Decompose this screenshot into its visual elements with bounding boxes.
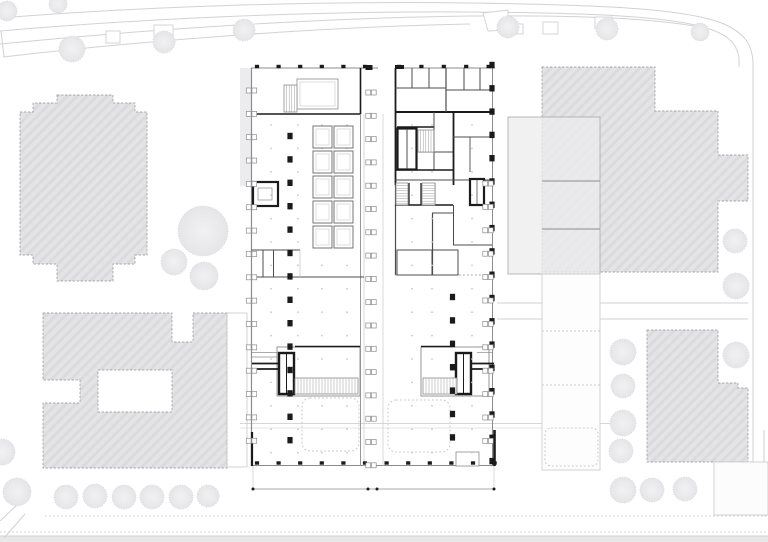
grid-marker bbox=[483, 392, 488, 397]
grid-marker bbox=[488, 228, 493, 233]
grid-marker bbox=[371, 207, 376, 212]
grid-marker bbox=[366, 346, 371, 351]
grid-dot bbox=[297, 428, 299, 430]
grid-dot bbox=[431, 428, 433, 430]
column-mark bbox=[287, 437, 292, 443]
grid-dot bbox=[471, 194, 473, 196]
survey-dot bbox=[493, 488, 496, 491]
grid-marker bbox=[371, 183, 376, 188]
grid-dot bbox=[411, 428, 413, 430]
tree bbox=[673, 477, 697, 501]
grid-dot bbox=[471, 241, 473, 243]
grid-marker bbox=[366, 90, 371, 95]
grid-dot bbox=[411, 358, 413, 360]
grid-marker bbox=[483, 368, 488, 373]
tree bbox=[83, 484, 107, 508]
grid-marker bbox=[246, 322, 251, 327]
grid-marker bbox=[246, 158, 251, 163]
grid-marker bbox=[252, 298, 257, 303]
grid-dot bbox=[270, 288, 272, 290]
facade-tick bbox=[320, 461, 324, 464]
grid-dot bbox=[270, 194, 272, 196]
facade-tick bbox=[341, 461, 345, 464]
grid-marker bbox=[246, 205, 251, 210]
grid-dot bbox=[346, 428, 348, 430]
grid-marker bbox=[483, 415, 488, 420]
tree bbox=[723, 342, 749, 368]
grid-marker bbox=[366, 323, 371, 328]
facade-tick bbox=[464, 65, 468, 68]
grid-dot bbox=[346, 265, 348, 267]
column-mark bbox=[287, 273, 292, 279]
grid-dot bbox=[431, 171, 433, 173]
grid-marker bbox=[246, 181, 251, 186]
column-mark bbox=[287, 203, 292, 209]
grid-marker bbox=[483, 251, 488, 256]
grid-marker bbox=[366, 230, 371, 235]
grid-marker bbox=[246, 345, 251, 350]
grid-dot bbox=[471, 265, 473, 267]
grid-dot bbox=[270, 265, 272, 267]
grid-marker bbox=[252, 415, 257, 420]
grid-marker bbox=[483, 438, 488, 443]
grid-marker bbox=[246, 438, 251, 443]
grid-marker bbox=[366, 253, 371, 258]
grid-dot bbox=[431, 335, 433, 337]
site-plan-page bbox=[0, 0, 768, 542]
grid-dot bbox=[297, 335, 299, 337]
grid-marker bbox=[488, 204, 493, 209]
survey-dot bbox=[367, 488, 370, 491]
grid-marker bbox=[483, 321, 488, 326]
grid-dot bbox=[270, 405, 272, 407]
grid-dot bbox=[270, 335, 272, 337]
tree bbox=[610, 477, 636, 503]
column-mark bbox=[489, 155, 494, 161]
grid-dot bbox=[321, 452, 323, 454]
grid-dot bbox=[297, 171, 299, 173]
facade-ticks-layer bbox=[255, 65, 497, 465]
grid-marker bbox=[488, 181, 493, 186]
column-mark bbox=[489, 108, 494, 114]
grid-marker bbox=[246, 298, 251, 303]
facade-tick bbox=[428, 461, 432, 464]
grid-dot bbox=[411, 452, 413, 454]
grid-dot bbox=[346, 452, 348, 454]
grid-marker bbox=[252, 135, 257, 140]
grid-marker bbox=[371, 137, 376, 142]
grid-marker bbox=[483, 181, 488, 186]
grid-dot bbox=[297, 124, 299, 126]
column-mark bbox=[450, 341, 455, 347]
grid-marker bbox=[483, 228, 488, 233]
stair-hatch bbox=[422, 183, 435, 205]
grid-marker bbox=[371, 393, 376, 398]
column-mark bbox=[450, 434, 455, 440]
grid-marker bbox=[483, 204, 488, 209]
grid-dot bbox=[411, 265, 413, 267]
grid-dot bbox=[471, 124, 473, 126]
tree bbox=[610, 339, 636, 365]
facade-tick bbox=[277, 65, 281, 68]
grid-dot bbox=[471, 148, 473, 150]
grid-marker bbox=[483, 345, 488, 350]
facade-tick bbox=[406, 461, 410, 464]
facade-tick bbox=[255, 65, 259, 68]
grid-dot bbox=[321, 311, 323, 313]
facade-tick bbox=[277, 461, 281, 464]
survey-dot bbox=[252, 488, 255, 491]
grid-dot bbox=[411, 241, 413, 243]
grid-dot bbox=[471, 311, 473, 313]
plaza-outline bbox=[714, 462, 768, 515]
parking-layer bbox=[313, 126, 353, 248]
column-mark bbox=[287, 226, 292, 232]
grid-dot bbox=[411, 171, 413, 173]
grid-dot bbox=[431, 265, 433, 267]
grid-dot bbox=[411, 288, 413, 290]
tree bbox=[723, 229, 747, 253]
grid-dot bbox=[346, 335, 348, 337]
entry-stub bbox=[456, 452, 479, 466]
grid-dot bbox=[321, 265, 323, 267]
grid-marker bbox=[488, 298, 493, 303]
sidewalk-strip bbox=[240, 68, 251, 186]
grid-dot bbox=[411, 218, 413, 220]
grid-dot bbox=[411, 405, 413, 407]
grid-dot bbox=[321, 428, 323, 430]
facade-tick bbox=[341, 65, 345, 68]
hall-platform bbox=[297, 79, 338, 109]
grid-marker bbox=[371, 323, 376, 328]
building-northwest bbox=[20, 95, 147, 281]
void-dashed-east bbox=[388, 400, 450, 452]
site-plan-drawing bbox=[0, 0, 768, 542]
building-southwest-hatch bbox=[43, 313, 227, 468]
walkway-upper bbox=[508, 117, 600, 274]
grid-dot bbox=[471, 288, 473, 290]
grid-dot bbox=[431, 311, 433, 313]
grid-marker bbox=[246, 111, 251, 116]
facade-tick bbox=[298, 461, 302, 464]
grid-markers-layer bbox=[246, 88, 493, 468]
grid-marker bbox=[371, 440, 376, 445]
road-stub bbox=[543, 22, 558, 34]
grid-marker bbox=[483, 275, 488, 280]
grid-marker bbox=[252, 111, 257, 116]
grid-marker bbox=[252, 438, 257, 443]
grid-marker bbox=[488, 345, 493, 350]
tree bbox=[691, 23, 709, 41]
column-mark bbox=[287, 414, 292, 420]
grid-marker bbox=[366, 393, 371, 398]
grid-dot bbox=[346, 311, 348, 313]
grid-dot bbox=[431, 124, 433, 126]
tree bbox=[609, 439, 633, 463]
corner-diagonal-2 bbox=[4, 514, 25, 538]
building-southwest bbox=[43, 313, 247, 468]
tree bbox=[610, 410, 636, 436]
grid-marker bbox=[371, 276, 376, 281]
grid-dot bbox=[471, 171, 473, 173]
grid-dot bbox=[297, 148, 299, 150]
survey-dot bbox=[376, 488, 379, 491]
grid-marker bbox=[246, 88, 251, 93]
grid-marker bbox=[252, 368, 257, 373]
grid-dot bbox=[270, 382, 272, 384]
facade-tick bbox=[385, 461, 389, 464]
tree bbox=[161, 249, 187, 275]
grid-dot bbox=[270, 428, 272, 430]
void-dashed-west bbox=[302, 398, 359, 451]
grid-marker bbox=[371, 463, 376, 468]
tree bbox=[197, 485, 219, 507]
grid-marker bbox=[252, 205, 257, 210]
grid-marker bbox=[371, 300, 376, 305]
walkway-lower bbox=[542, 274, 600, 470]
grid-marker bbox=[366, 137, 371, 142]
tree bbox=[140, 485, 164, 509]
grid-dot bbox=[411, 124, 413, 126]
grid-dot bbox=[411, 311, 413, 313]
grid-dot bbox=[411, 148, 413, 150]
stair-hatch bbox=[396, 183, 408, 205]
grid-dot bbox=[471, 405, 473, 407]
grid-marker bbox=[371, 230, 376, 235]
grid-dot bbox=[471, 382, 473, 384]
building-southeast bbox=[647, 330, 768, 515]
tree bbox=[3, 478, 31, 506]
column-mark bbox=[489, 85, 494, 91]
column-mark bbox=[287, 297, 292, 303]
grid-marker bbox=[371, 346, 376, 351]
corner-diagonal-1 bbox=[0, 506, 16, 521]
building-southwest-strip bbox=[227, 313, 247, 467]
grid-dot bbox=[346, 288, 348, 290]
road-bottom-band bbox=[0, 536, 768, 542]
central-building bbox=[240, 62, 497, 491]
grid-marker bbox=[488, 321, 493, 326]
grid-dot bbox=[297, 452, 299, 454]
grid-marker bbox=[366, 463, 371, 468]
facade-tick bbox=[363, 65, 367, 68]
facade-tick bbox=[397, 65, 401, 68]
grid-dot bbox=[297, 405, 299, 407]
grid-dot bbox=[321, 335, 323, 337]
grid-marker bbox=[252, 228, 257, 233]
grid-dot bbox=[411, 194, 413, 196]
grid-marker bbox=[252, 181, 257, 186]
grid-dot bbox=[270, 218, 272, 220]
column-mark bbox=[287, 390, 292, 396]
tree bbox=[169, 485, 193, 509]
tree bbox=[190, 262, 218, 290]
grid-dot bbox=[297, 358, 299, 360]
grid-dot bbox=[431, 218, 433, 220]
grid-marker bbox=[371, 253, 376, 258]
grid-marker bbox=[366, 183, 371, 188]
grid-dot bbox=[411, 335, 413, 337]
stair-hatch bbox=[284, 85, 297, 112]
grid-marker bbox=[371, 113, 376, 118]
grid-marker bbox=[252, 322, 257, 327]
tree bbox=[0, 1, 17, 21]
grid-marker bbox=[488, 438, 493, 443]
grid-dot bbox=[431, 452, 433, 454]
grid-marker bbox=[246, 228, 251, 233]
tree bbox=[59, 36, 85, 62]
grid-dot bbox=[297, 194, 299, 196]
grid-marker bbox=[488, 368, 493, 373]
grid-dot bbox=[270, 171, 272, 173]
grid-marker bbox=[366, 416, 371, 421]
tree bbox=[723, 273, 749, 299]
grid-marker bbox=[488, 251, 493, 256]
tree bbox=[611, 374, 635, 398]
grid-dot bbox=[297, 311, 299, 313]
grid-dot bbox=[346, 358, 348, 360]
grid-marker bbox=[488, 415, 493, 420]
facade-tick bbox=[419, 65, 423, 68]
column-mark bbox=[287, 343, 292, 349]
grid-marker bbox=[246, 251, 251, 256]
column-mark bbox=[450, 364, 455, 370]
grid-marker bbox=[371, 370, 376, 375]
column-mark bbox=[450, 387, 455, 393]
grid-dot bbox=[270, 311, 272, 313]
grid-dot bbox=[321, 405, 323, 407]
grid-dot bbox=[431, 288, 433, 290]
grid-dot bbox=[297, 241, 299, 243]
grid-dot bbox=[346, 405, 348, 407]
grid-dot bbox=[471, 335, 473, 337]
column-mark bbox=[450, 411, 455, 417]
column-mark bbox=[287, 250, 292, 256]
grid-marker bbox=[246, 392, 251, 397]
tree bbox=[112, 485, 136, 509]
column-mark bbox=[287, 156, 292, 162]
tree bbox=[497, 16, 519, 38]
tree bbox=[0, 439, 15, 465]
grid-marker bbox=[371, 90, 376, 95]
facade-tick bbox=[298, 65, 302, 68]
grid-marker bbox=[252, 88, 257, 93]
grid-dot bbox=[270, 358, 272, 360]
grid-marker bbox=[252, 275, 257, 280]
grid-marker bbox=[366, 113, 371, 118]
grid-marker bbox=[488, 392, 493, 397]
columns-layer bbox=[287, 62, 494, 465]
road-stub bbox=[106, 31, 120, 43]
tree bbox=[596, 18, 618, 40]
grid-dot bbox=[471, 358, 473, 360]
grid-marker bbox=[366, 276, 371, 281]
grid-marker bbox=[366, 370, 371, 375]
grid-dot bbox=[321, 288, 323, 290]
grid-marker bbox=[371, 160, 376, 165]
grid-marker bbox=[483, 298, 488, 303]
column-mark bbox=[489, 132, 494, 138]
grid-marker bbox=[488, 275, 493, 280]
column-mark bbox=[450, 294, 455, 300]
column-mark bbox=[489, 458, 494, 464]
grid-dot bbox=[270, 124, 272, 126]
column-mark bbox=[450, 317, 455, 323]
stair-hatch bbox=[295, 378, 358, 394]
grid-dot bbox=[270, 241, 272, 243]
building-northwest-hatch bbox=[20, 95, 147, 281]
tree bbox=[54, 485, 78, 509]
grid-marker bbox=[252, 251, 257, 256]
grid-marker bbox=[252, 158, 257, 163]
grid-marker bbox=[366, 160, 371, 165]
grid-marker bbox=[246, 135, 251, 140]
facade-tick bbox=[320, 65, 324, 68]
facade-tick bbox=[442, 65, 446, 68]
grid-marker bbox=[366, 207, 371, 212]
grid-dot bbox=[471, 428, 473, 430]
column-mark bbox=[287, 180, 292, 186]
grid-marker bbox=[246, 368, 251, 373]
room bbox=[397, 250, 458, 275]
grid-marker bbox=[371, 416, 376, 421]
grid-marker bbox=[246, 415, 251, 420]
tree bbox=[233, 19, 255, 41]
buildings-layer bbox=[20, 67, 768, 515]
grid-marker bbox=[366, 440, 371, 445]
grid-dot bbox=[431, 358, 433, 360]
grid-dot bbox=[297, 288, 299, 290]
grid-dot bbox=[321, 358, 323, 360]
facade-tick bbox=[255, 461, 259, 464]
column-mark bbox=[489, 62, 494, 68]
grid-dot bbox=[471, 452, 473, 454]
grid-dot bbox=[431, 405, 433, 407]
grid-dot bbox=[411, 382, 413, 384]
grid-dot bbox=[431, 241, 433, 243]
grid-dot bbox=[270, 148, 272, 150]
grid-dot bbox=[297, 218, 299, 220]
tree bbox=[49, 0, 67, 13]
column-mark bbox=[287, 367, 292, 373]
tree bbox=[640, 478, 664, 502]
grid-dot bbox=[471, 218, 473, 220]
grid-marker bbox=[246, 275, 251, 280]
grid-marker bbox=[252, 392, 257, 397]
column-mark bbox=[287, 320, 292, 326]
facade-tick bbox=[471, 461, 475, 464]
column-mark bbox=[287, 133, 292, 139]
tree bbox=[178, 206, 228, 256]
grid-dots-layer bbox=[270, 124, 473, 453]
grid-marker bbox=[252, 345, 257, 350]
grid-dot bbox=[297, 265, 299, 267]
grid-dot bbox=[270, 452, 272, 454]
grid-marker bbox=[366, 300, 371, 305]
tree bbox=[153, 31, 175, 53]
facade-tick bbox=[449, 461, 453, 464]
